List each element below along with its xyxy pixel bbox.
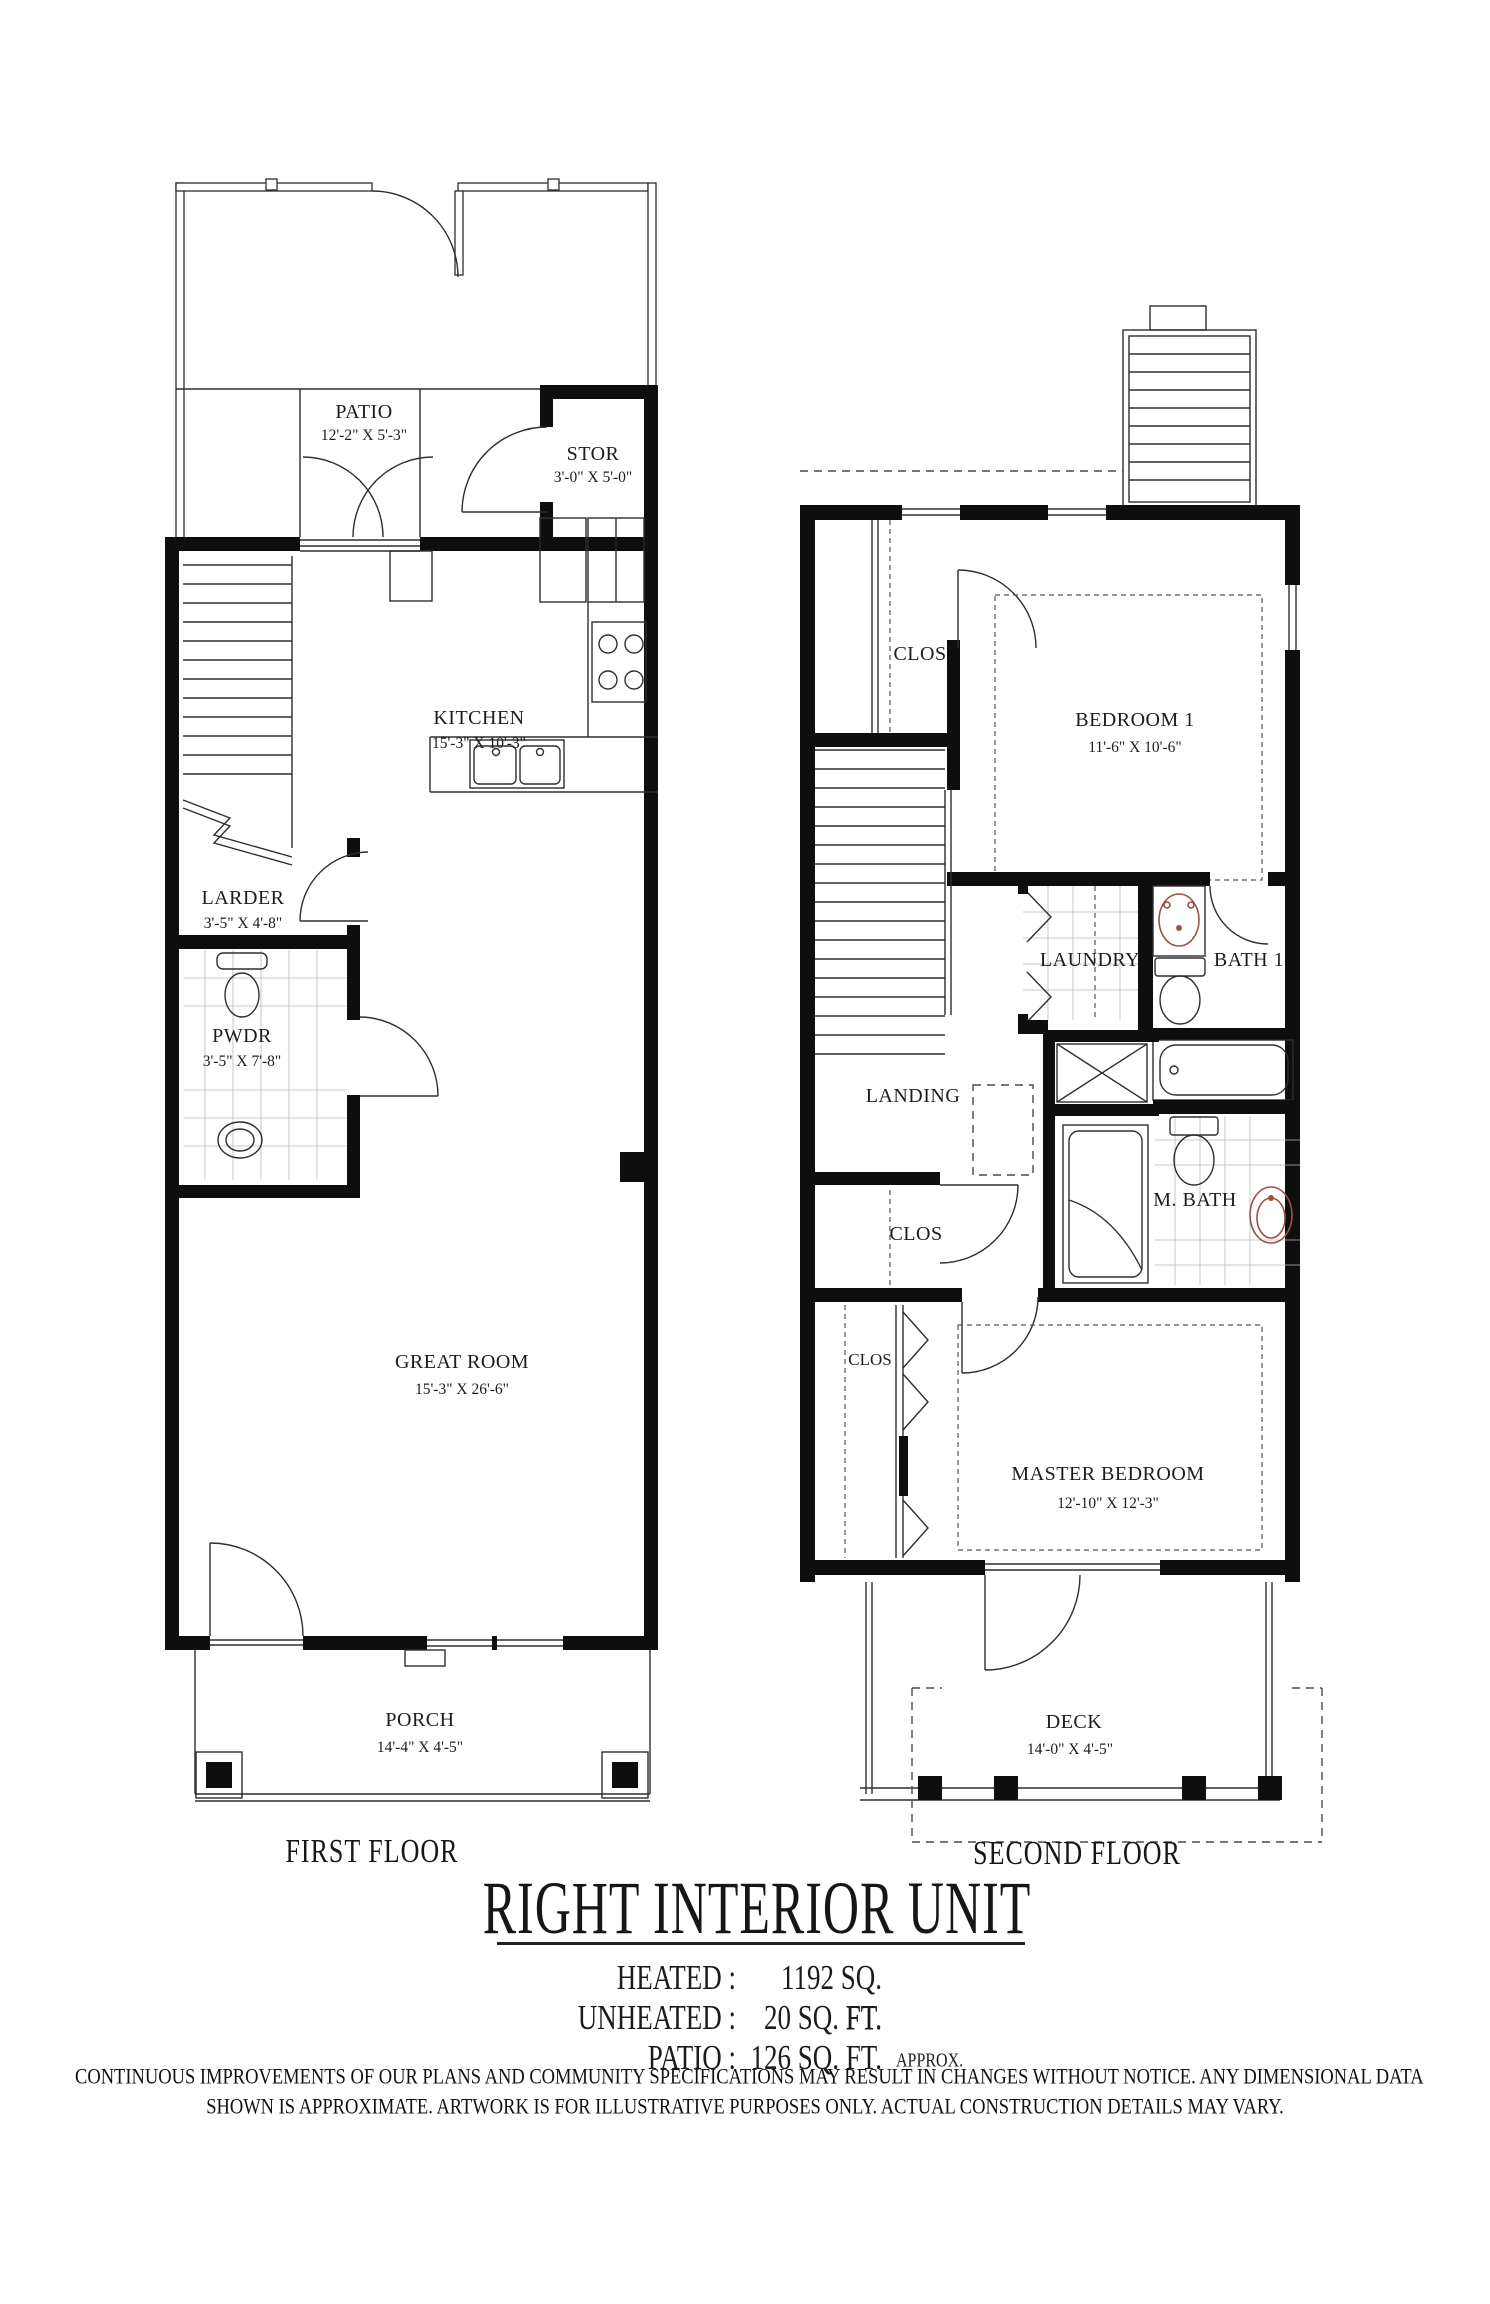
room-dims-stor: 3'-0" X 5'-0": [554, 469, 633, 486]
room-label-patio: PATIO: [335, 401, 392, 423]
first-floor-labels: PATIO 12'-2" X 5'-3" STOR 3'-0" X 5'-0" …: [202, 401, 633, 1756]
room-label-great-room: GREAT ROOM: [395, 1351, 529, 1373]
stove: [592, 622, 646, 702]
stair-bulkhead: [1123, 306, 1256, 508]
master-carpet-outline: [958, 1325, 1262, 1550]
second-floor-stairs: [815, 750, 951, 1054]
closet-master: [845, 1305, 928, 1558]
room-label-clos-master: CLOS: [848, 1350, 891, 1369]
front-door: [210, 1543, 303, 1636]
room-label-pwdr: PWDR: [212, 1025, 272, 1047]
room-label-porch: PORCH: [385, 1709, 454, 1731]
room-label-master-bedroom: MASTER BEDROOM: [1011, 1463, 1204, 1485]
bathtub: [1153, 1040, 1293, 1100]
bedroom1-door: [958, 570, 1036, 648]
second-floor-plan: CLOS BEDROOM 1 11'-6" X 10'-6" LAUNDRY B…: [800, 306, 1322, 1842]
second-floor-labels: CLOS BEDROOM 1 11'-6" X 10'-6" LAUNDRY B…: [848, 643, 1284, 1758]
stat-value-unheated: 20 SQ. FT.: [746, 1998, 882, 2038]
bath1-toilet: [1155, 958, 1205, 1024]
stat-label-heated: HEATED :: [436, 1958, 736, 1998]
stat-label-unheated: UNHEATED :: [436, 1998, 736, 2038]
mbath-toilet: [1170, 1117, 1218, 1185]
room-label-bedroom1: BEDROOM 1: [1075, 709, 1195, 731]
storage-room: [462, 385, 658, 537]
room-dims-patio: 12'-2" X 5'-3": [321, 427, 407, 444]
first-floor-plan: PATIO 12'-2" X 5'-3" STOR 3'-0" X 5'-0" …: [165, 179, 658, 1801]
deck-door: [985, 1575, 1080, 1670]
bifold-door-icon: [1027, 972, 1051, 1022]
disclaimer-line-1: CONTINUOUS IMPROVEMENTS OF OUR PLANS AND…: [75, 2062, 1415, 2094]
room-dims-larder: 3'-5" X 4'-8": [204, 915, 283, 932]
pwdr-sink: [218, 1122, 262, 1158]
room-dims-great-room: 15'-3" X 26'-6": [415, 1381, 509, 1398]
room-label-clos-top: CLOS: [893, 643, 946, 665]
room-dims-porch: 14'-4" X 4'-5": [377, 1739, 463, 1756]
first-floor-stairs: [183, 556, 292, 865]
room-label-mbath: M. BATH: [1153, 1189, 1237, 1211]
bifold-door-icon: [1027, 892, 1051, 942]
room-label-landing: LANDING: [866, 1085, 961, 1107]
disclaimer-line-2: SHOWN IS APPROXIMATE. ARTWORK IS FOR ILL…: [75, 2092, 1415, 2124]
bath1-room: [1153, 886, 1300, 1114]
room-label-laundry: LAUNDRY: [1040, 949, 1140, 971]
shower-chase: [1043, 1030, 1159, 1116]
pwdr-toilet: [217, 953, 267, 1017]
room-label-stor: STOR: [567, 443, 620, 465]
room-dims-deck: 14'-0" X 4'-5": [1027, 1741, 1113, 1758]
first-floor-walls: [165, 385, 658, 1650]
bifold-door-icon: [903, 1374, 928, 1430]
floor-plan-drawing: PATIO 12'-2" X 5'-3" STOR 3'-0" X 5'-0" …: [0, 0, 1490, 2304]
bedroom1-bottom-wall: [947, 872, 1300, 944]
room-dims-pwdr: 3'-5" X 7'-8": [203, 1053, 282, 1070]
room-label-clos-mid: CLOS: [889, 1223, 942, 1245]
room-label-bath1: BATH 1: [1214, 949, 1284, 971]
room-label-deck: DECK: [1046, 1711, 1103, 1733]
room-label-larder: LARDER: [202, 887, 285, 909]
bifold-door-icon: [903, 1500, 928, 1556]
attic-access-outline: [973, 1085, 1033, 1175]
room-dims-bedroom1: 11'-6" X 10'-6": [1088, 739, 1181, 756]
floor-plan-sheet: PATIO 12'-2" X 5'-3" STOR 3'-0" X 5'-0" …: [0, 0, 1490, 2304]
room-label-kitchen: KITCHEN: [433, 707, 524, 729]
page-title: RIGHT INTERIOR UNIT: [407, 1864, 1107, 1951]
title-underline: [497, 1942, 1025, 1945]
room-dims-kitchen: 15'-3" X 10'-3": [432, 735, 526, 752]
bifold-door-icon: [903, 1312, 928, 1368]
room-dims-master-bedroom: 12'-10" X 12'-3": [1057, 1495, 1159, 1512]
mbath-shower: [1063, 1125, 1148, 1283]
